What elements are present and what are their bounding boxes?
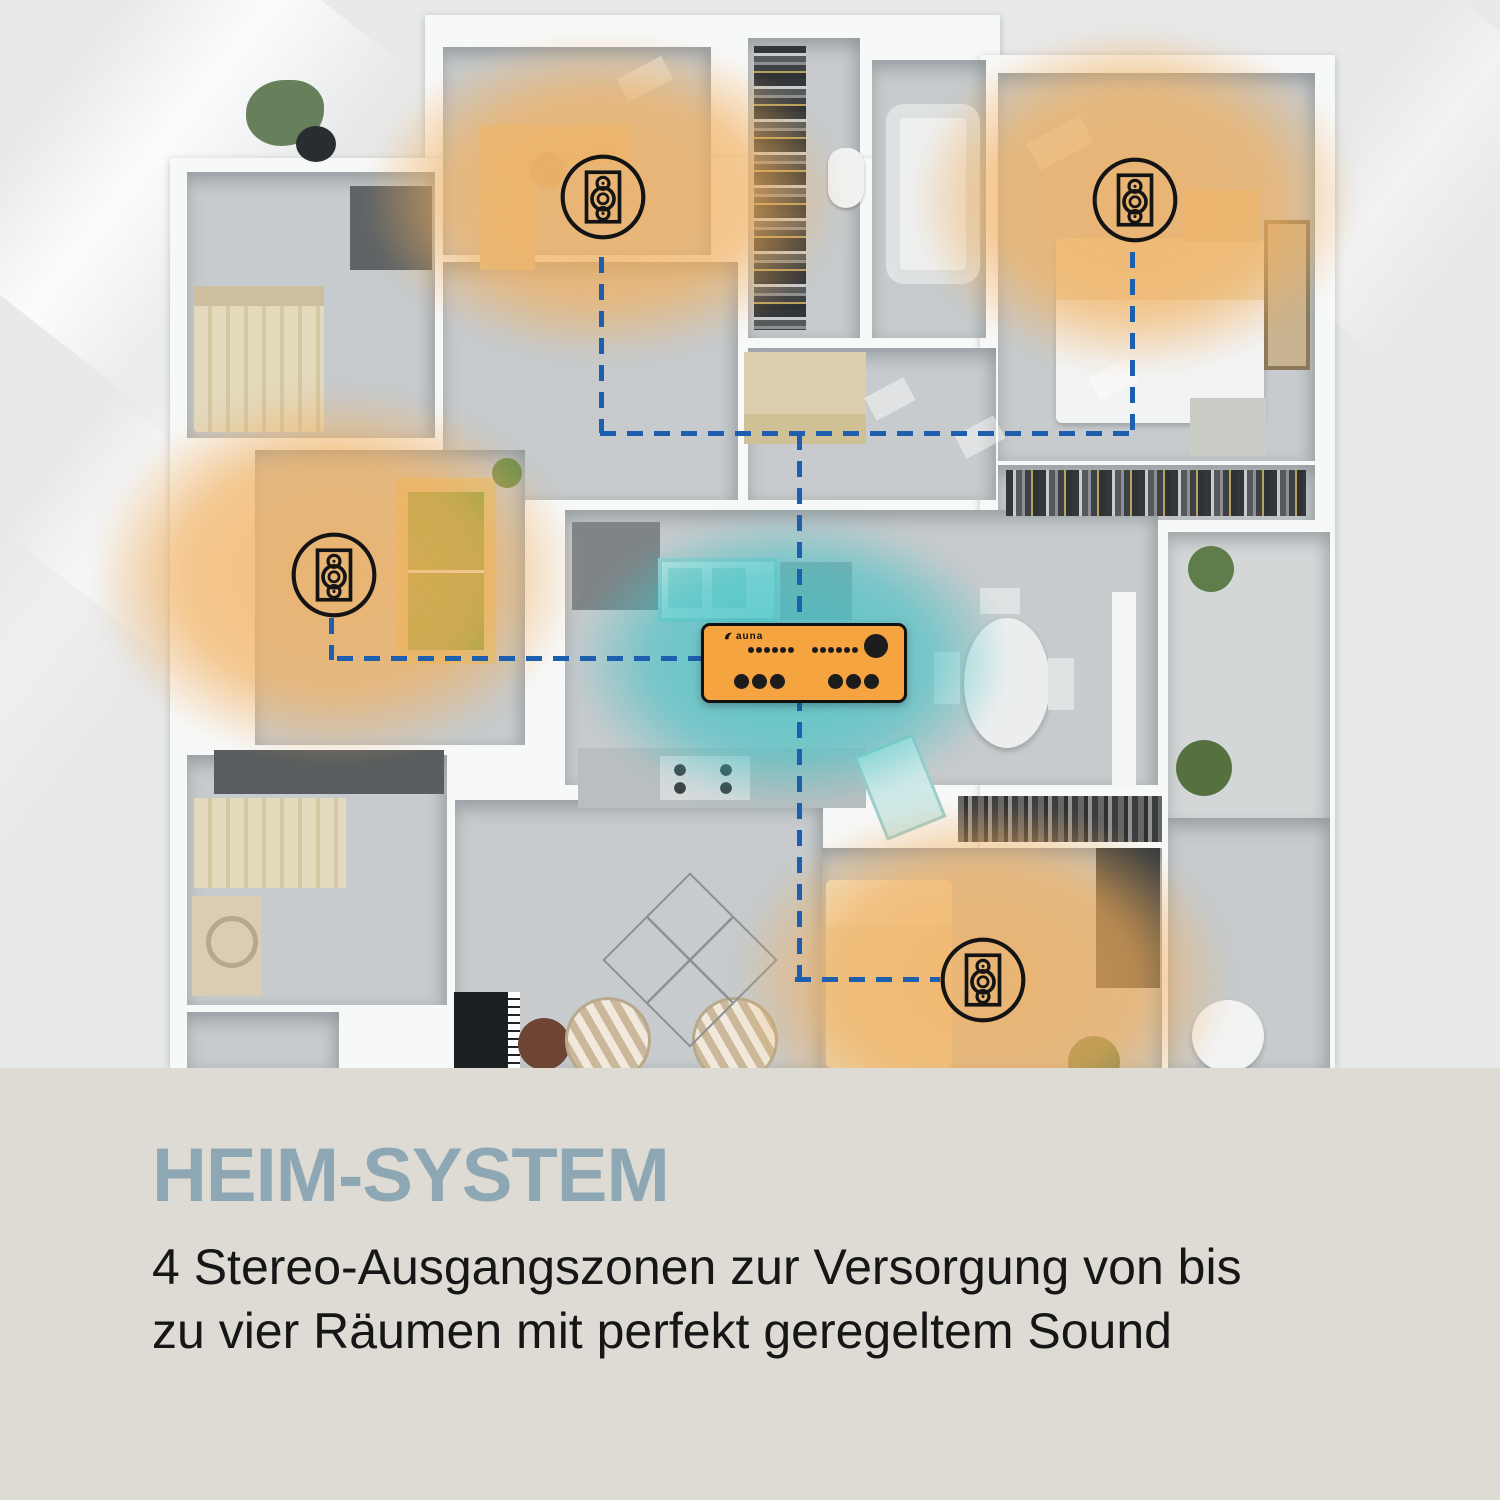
plant-games <box>492 458 522 488</box>
dresser <box>1190 398 1266 456</box>
connection-line-amp-up <box>797 434 802 625</box>
speaker-icon <box>1091 156 1179 244</box>
round-table <box>1192 1000 1264 1068</box>
apartment-floorplan: auna <box>0 0 1500 1068</box>
amp-large-buttons <box>828 674 879 689</box>
connection-line-drop-zone1 <box>599 257 604 433</box>
amplifier: auna <box>701 623 907 703</box>
page-title: HEIM-SYSTEM <box>152 1138 669 1214</box>
bookshelf <box>958 796 1162 842</box>
office-desk <box>480 125 535 270</box>
connection-line-drop-zone2 <box>1130 252 1135 433</box>
amp-small-buttons <box>748 647 794 653</box>
auna-bird-icon <box>724 632 733 641</box>
dining-chair <box>1048 658 1074 710</box>
kitchen-sink <box>668 568 702 608</box>
wardrobe-corridor <box>754 46 806 330</box>
wall-art <box>1264 220 1310 370</box>
connection-line-zone3-stub <box>329 618 334 660</box>
bed-left <box>194 286 324 432</box>
speaker-icon <box>290 531 378 619</box>
coffee-table <box>518 1018 570 1068</box>
amp-large-buttons <box>734 674 785 689</box>
bed-bottom-left <box>194 798 346 888</box>
dining-bench <box>980 588 1020 614</box>
speaker-zone-bottom-speaker-icon <box>939 936 1027 1029</box>
balcony-plant <box>1176 740 1232 796</box>
auna-logo: auna <box>724 631 763 642</box>
desk-dark <box>350 186 432 270</box>
kitchen-counter <box>780 562 852 620</box>
dining-chair <box>934 652 960 704</box>
speaker-icon <box>559 153 647 241</box>
product-infographic: auna HEIM-SYSTEM 4 Stereo-Ausgangszonen … <box>0 0 1500 1500</box>
room-floor-bath-bottom-left <box>187 1012 339 1068</box>
sofa-armrest <box>826 880 952 926</box>
tv-unit <box>1096 848 1160 988</box>
window-kitchen <box>1112 588 1136 788</box>
caption-line-2: zu vier Räumen mit perfekt geregeltem So… <box>152 1306 1172 1356</box>
dining-table <box>964 618 1050 748</box>
speaker-icon <box>939 936 1027 1024</box>
kitchen-sink <box>712 568 746 608</box>
auna-brand-text: auna <box>736 631 763 642</box>
speaker-zone-top-right-speaker-icon <box>1091 156 1179 249</box>
planter-pot <box>296 126 336 162</box>
connection-line-zone3-h <box>337 656 705 661</box>
bed-headboard <box>194 286 324 306</box>
bathtub <box>886 104 980 284</box>
nightstand <box>1186 190 1260 242</box>
piano-keys <box>508 992 520 1068</box>
washer-door <box>206 916 258 968</box>
connection-line-zone4-h <box>795 977 940 982</box>
speaker-zone-top-left-speaker-icon <box>559 153 647 246</box>
caption-line-1: 4 Stereo-Ausgangszonen zur Versorgung vo… <box>152 1242 1242 1292</box>
connection-line-amp-down <box>797 695 802 983</box>
amp-small-buttons <box>812 647 858 653</box>
toilet <box>828 148 864 208</box>
kitchen-cabinet-dark <box>572 522 660 610</box>
volume-knob <box>864 634 888 658</box>
stove <box>660 756 750 800</box>
connection-line-bus-top <box>600 431 1137 436</box>
balcony-plant <box>1188 546 1234 592</box>
closet-dark-bottom-left <box>214 750 444 794</box>
foosball-field <box>408 492 484 650</box>
wardrobe-right <box>1006 470 1306 516</box>
speaker-zone-mid-left-speaker-icon <box>290 531 378 624</box>
